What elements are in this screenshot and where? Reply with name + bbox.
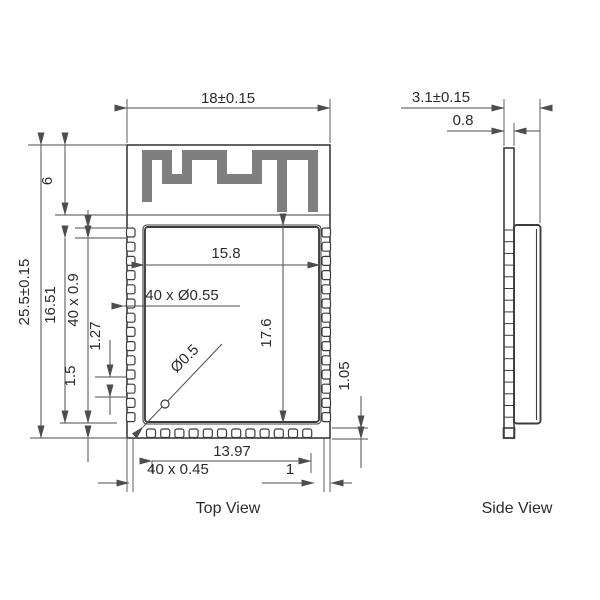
antenna-height-label: 6 — [39, 177, 56, 185]
dim-pcb-thickness: 0.8 — [447, 112, 540, 146]
dim-right-edge-gap: 1.05 — [332, 361, 368, 468]
bottom-castellation-pads — [147, 429, 312, 438]
dim-body-height: 16.51 — [42, 228, 126, 423]
dim-overall-width: 18±0.15 — [127, 90, 330, 143]
castellation-hatching — [504, 230, 514, 417]
overall-width-label: 18±0.15 — [201, 90, 255, 107]
via-diameter-label: Ø0.5 — [167, 341, 202, 376]
overall-height-label: 25.5±0.15 — [16, 259, 33, 326]
overall-thickness-label: 3.1±0.15 — [412, 89, 470, 106]
dim-via-diameter: Ø0.5 — [143, 341, 222, 427]
via-hole — [161, 400, 169, 408]
dim-side-pads: 40 x 0.9 — [65, 210, 88, 423]
pcb-antenna-trace — [142, 150, 318, 212]
pad-pitch-label: 1.27 — [87, 321, 104, 350]
body-height-label: 16.51 — [42, 286, 59, 324]
bottom-margin-label: 1 — [286, 461, 294, 478]
bottom-pads-label: 40 x 0.45 — [147, 461, 209, 478]
dim-pad-pitch: 1.27 — [87, 321, 126, 415]
side-view: 3.1±0.15 0.8 Side View — [401, 89, 553, 517]
shield-width-label: 15.8 — [211, 245, 240, 262]
right-edge-gap-label: 1.05 — [336, 361, 353, 390]
side-view-label: Side View — [482, 500, 553, 517]
dim-shield-width: 15.8 — [144, 245, 320, 265]
drawing-canvas: 18±0.15 25.5±0.15 6 16.51 40 x 0.9 — [0, 0, 600, 600]
bottom-pad-span-label: 13.97 — [213, 443, 251, 460]
dim-pad-edge-gap: 1.5 — [62, 366, 88, 462]
side-pads-label: 40 x 0.9 — [65, 273, 82, 326]
dim-bottom-pads: 40 x 0.45 1 — [98, 461, 352, 483]
dim-castellation-holes: 40 x Ø0.55 — [124, 287, 240, 306]
dim-antenna-height: 6 — [39, 145, 126, 215]
dim-shield-height: 17.6 — [258, 226, 283, 423]
module-dimension-drawing: 18±0.15 25.5±0.15 6 16.51 40 x 0.9 — [0, 0, 600, 600]
top-view: 18±0.15 25.5±0.15 6 16.51 40 x 0.9 — [16, 90, 368, 517]
castellation-holes-label: 40 x Ø0.55 — [145, 287, 218, 304]
dim-overall-thickness: 3.1±0.15 — [401, 89, 551, 223]
pcb-thickness-label: 0.8 — [453, 112, 474, 129]
pad-edge-gap-label: 1.5 — [62, 366, 79, 387]
pcb-edge-profile — [504, 148, 514, 438]
shield-height-label: 17.6 — [258, 318, 275, 347]
bottom-pad-profile — [504, 428, 515, 438]
top-view-label: Top View — [196, 500, 261, 517]
